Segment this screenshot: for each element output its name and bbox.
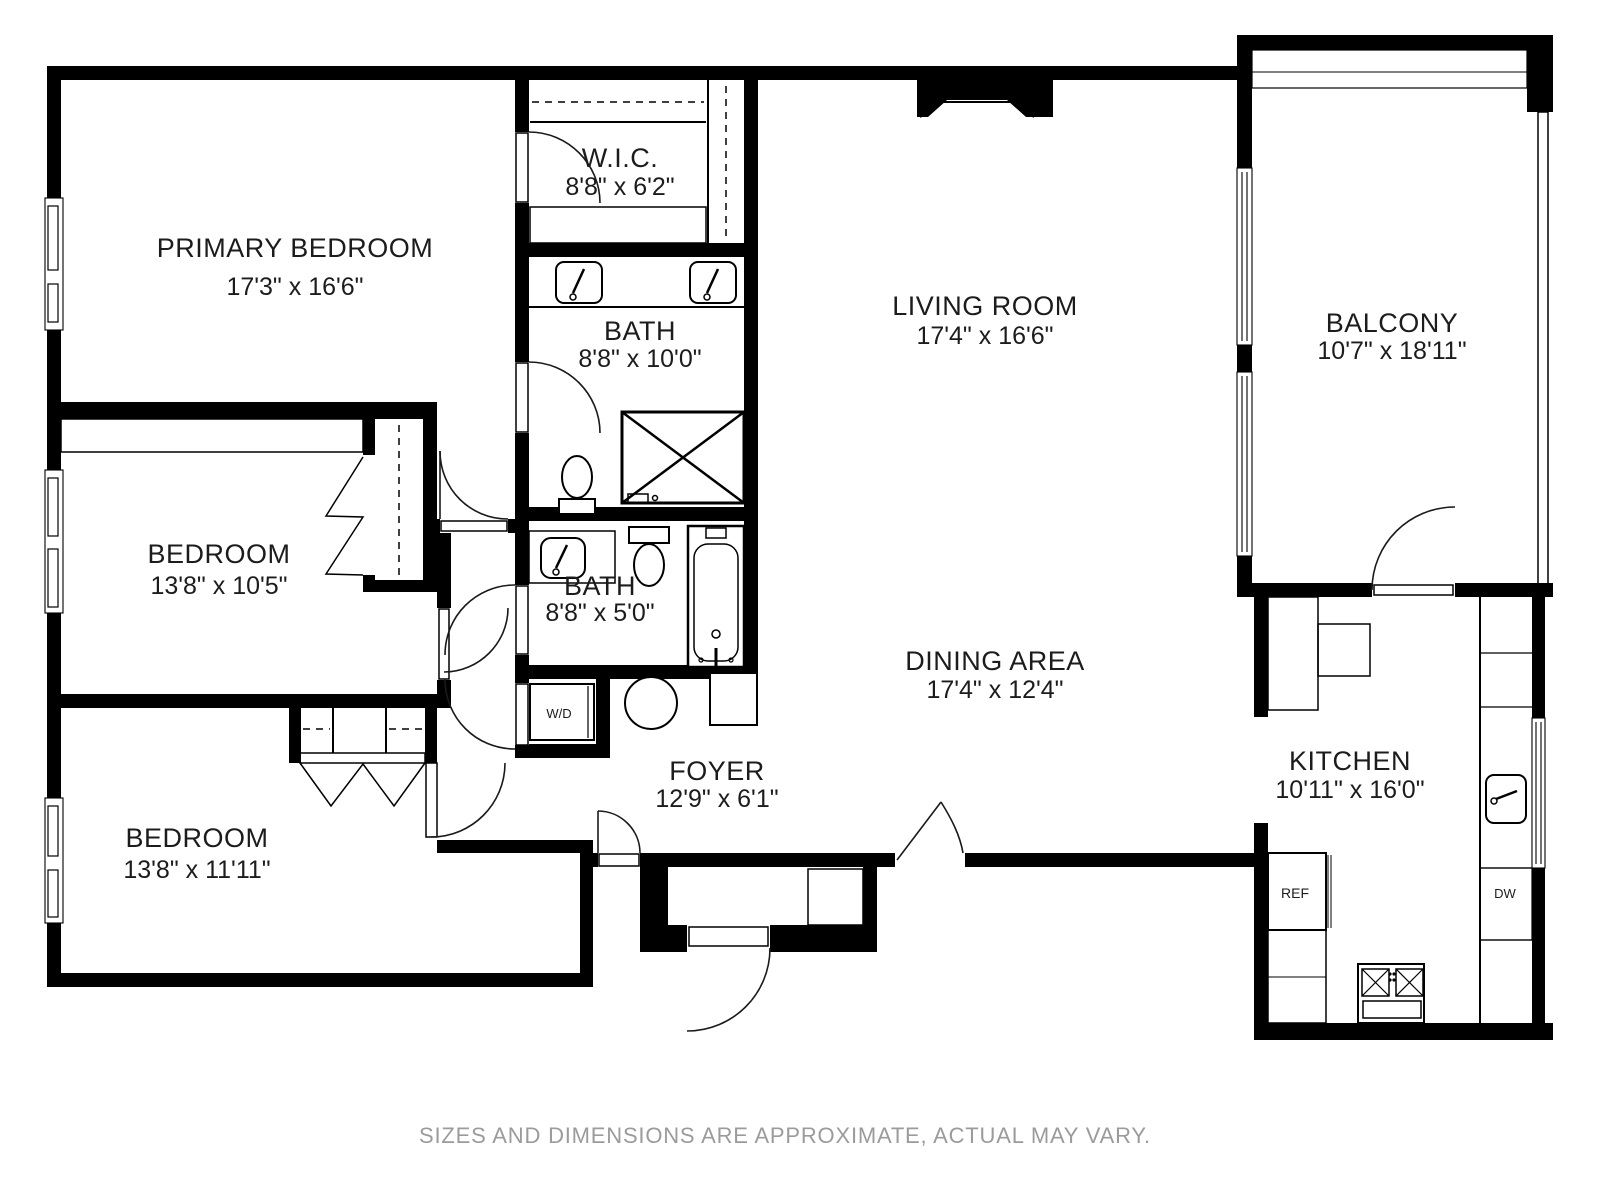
main-entry-door bbox=[687, 927, 770, 1031]
label-balcony-dims: 10'7" x 18'11" bbox=[1317, 337, 1466, 365]
counter-left bbox=[1268, 597, 1318, 710]
label-bath1-dims: 8'8" x 10'0" bbox=[578, 345, 701, 373]
shower-icon bbox=[622, 412, 744, 503]
service-entry-door bbox=[897, 802, 963, 860]
round-table-icon bbox=[625, 677, 677, 729]
kitchen-fixtures bbox=[1268, 597, 1532, 1023]
foyer-hall-door bbox=[598, 811, 640, 866]
label-living-room-name: LIVING ROOM bbox=[892, 291, 1078, 321]
label-wic-dims: 8'8" x 6'2" bbox=[565, 173, 674, 201]
label-primary-bedroom-name: PRIMARY BEDROOM bbox=[157, 233, 434, 263]
balcony-door bbox=[1372, 507, 1455, 595]
label-bedroom3-dims: 13'8" x 11'11" bbox=[123, 856, 270, 884]
bath1-fixtures bbox=[529, 262, 744, 514]
label-bedroom2-dims: 13'8" x 10'5" bbox=[150, 572, 287, 600]
sink-icon bbox=[556, 262, 602, 303]
foyer-furniture bbox=[625, 673, 757, 729]
dishwasher-icon bbox=[1480, 868, 1532, 940]
coat-closet bbox=[808, 869, 863, 925]
bathtub-icon bbox=[688, 526, 744, 667]
label-dining-area-name: DINING AREA bbox=[905, 646, 1085, 676]
label-washer-dryer: W/D bbox=[546, 706, 571, 721]
label-bedroom3-name: BEDROOM bbox=[125, 823, 268, 853]
label-wic-name: W.I.C. bbox=[582, 143, 659, 173]
label-bath1-name: BATH bbox=[604, 316, 676, 346]
sink-icon bbox=[690, 262, 736, 303]
disclaimer-text: SIZES AND DIMENSIONS ARE APPROXIMATE, AC… bbox=[419, 1123, 1151, 1148]
room-labels: PRIMARY BEDROOM 17'3" x 16'6" W.I.C. 8'8… bbox=[123, 143, 1516, 901]
bedroom3-door bbox=[426, 763, 505, 837]
bedroom2-door bbox=[439, 608, 508, 679]
label-dishwasher: DW bbox=[1494, 886, 1516, 901]
walls bbox=[47, 35, 1553, 1040]
living-balcony-window-2 bbox=[1237, 372, 1252, 556]
counter-peninsula bbox=[1318, 624, 1370, 676]
label-kitchen-dims: 10'11" x 16'0" bbox=[1275, 776, 1424, 804]
balcony-railing bbox=[1538, 112, 1548, 583]
kitchen-sink-icon bbox=[1486, 775, 1526, 823]
label-kitchen-name: KITCHEN bbox=[1289, 746, 1411, 776]
label-refrigerator: REF bbox=[1281, 885, 1309, 901]
label-living-room-dims: 17'4" x 16'6" bbox=[916, 322, 1053, 350]
wall-openings bbox=[363, 100, 1034, 867]
laundry-door bbox=[445, 679, 528, 749]
floor-plan-svg: PRIMARY BEDROOM 17'3" x 16'6" W.I.C. 8'8… bbox=[0, 0, 1600, 1200]
bath2-fixtures bbox=[529, 526, 744, 667]
kitchen-window bbox=[1532, 718, 1545, 868]
label-foyer-dims: 12'9" x 6'1" bbox=[655, 785, 778, 813]
floor-plan: PRIMARY BEDROOM 17'3" x 16'6" W.I.C. 8'8… bbox=[0, 0, 1600, 1200]
label-balcony-name: BALCONY bbox=[1326, 308, 1459, 338]
label-primary-bedroom-dims: 17'3" x 16'6" bbox=[226, 273, 363, 301]
cabinet-icon bbox=[710, 673, 757, 725]
living-balcony-window-1 bbox=[1237, 168, 1252, 345]
bath2-door bbox=[445, 585, 528, 655]
label-bath2-dims: 8'8" x 5'0" bbox=[545, 599, 654, 627]
bedroom2-shelf bbox=[61, 419, 363, 452]
label-bedroom2-name: BEDROOM bbox=[147, 539, 290, 569]
label-foyer-name: FOYER bbox=[669, 756, 765, 786]
balcony-lintel bbox=[1252, 50, 1527, 88]
bedroom3-closet bbox=[300, 708, 425, 806]
stove-icon bbox=[1358, 964, 1424, 1023]
label-bath2-name: BATH bbox=[564, 571, 636, 601]
toilet-icon bbox=[559, 456, 595, 514]
label-dining-area-dims: 17'4" x 12'4" bbox=[926, 676, 1063, 704]
